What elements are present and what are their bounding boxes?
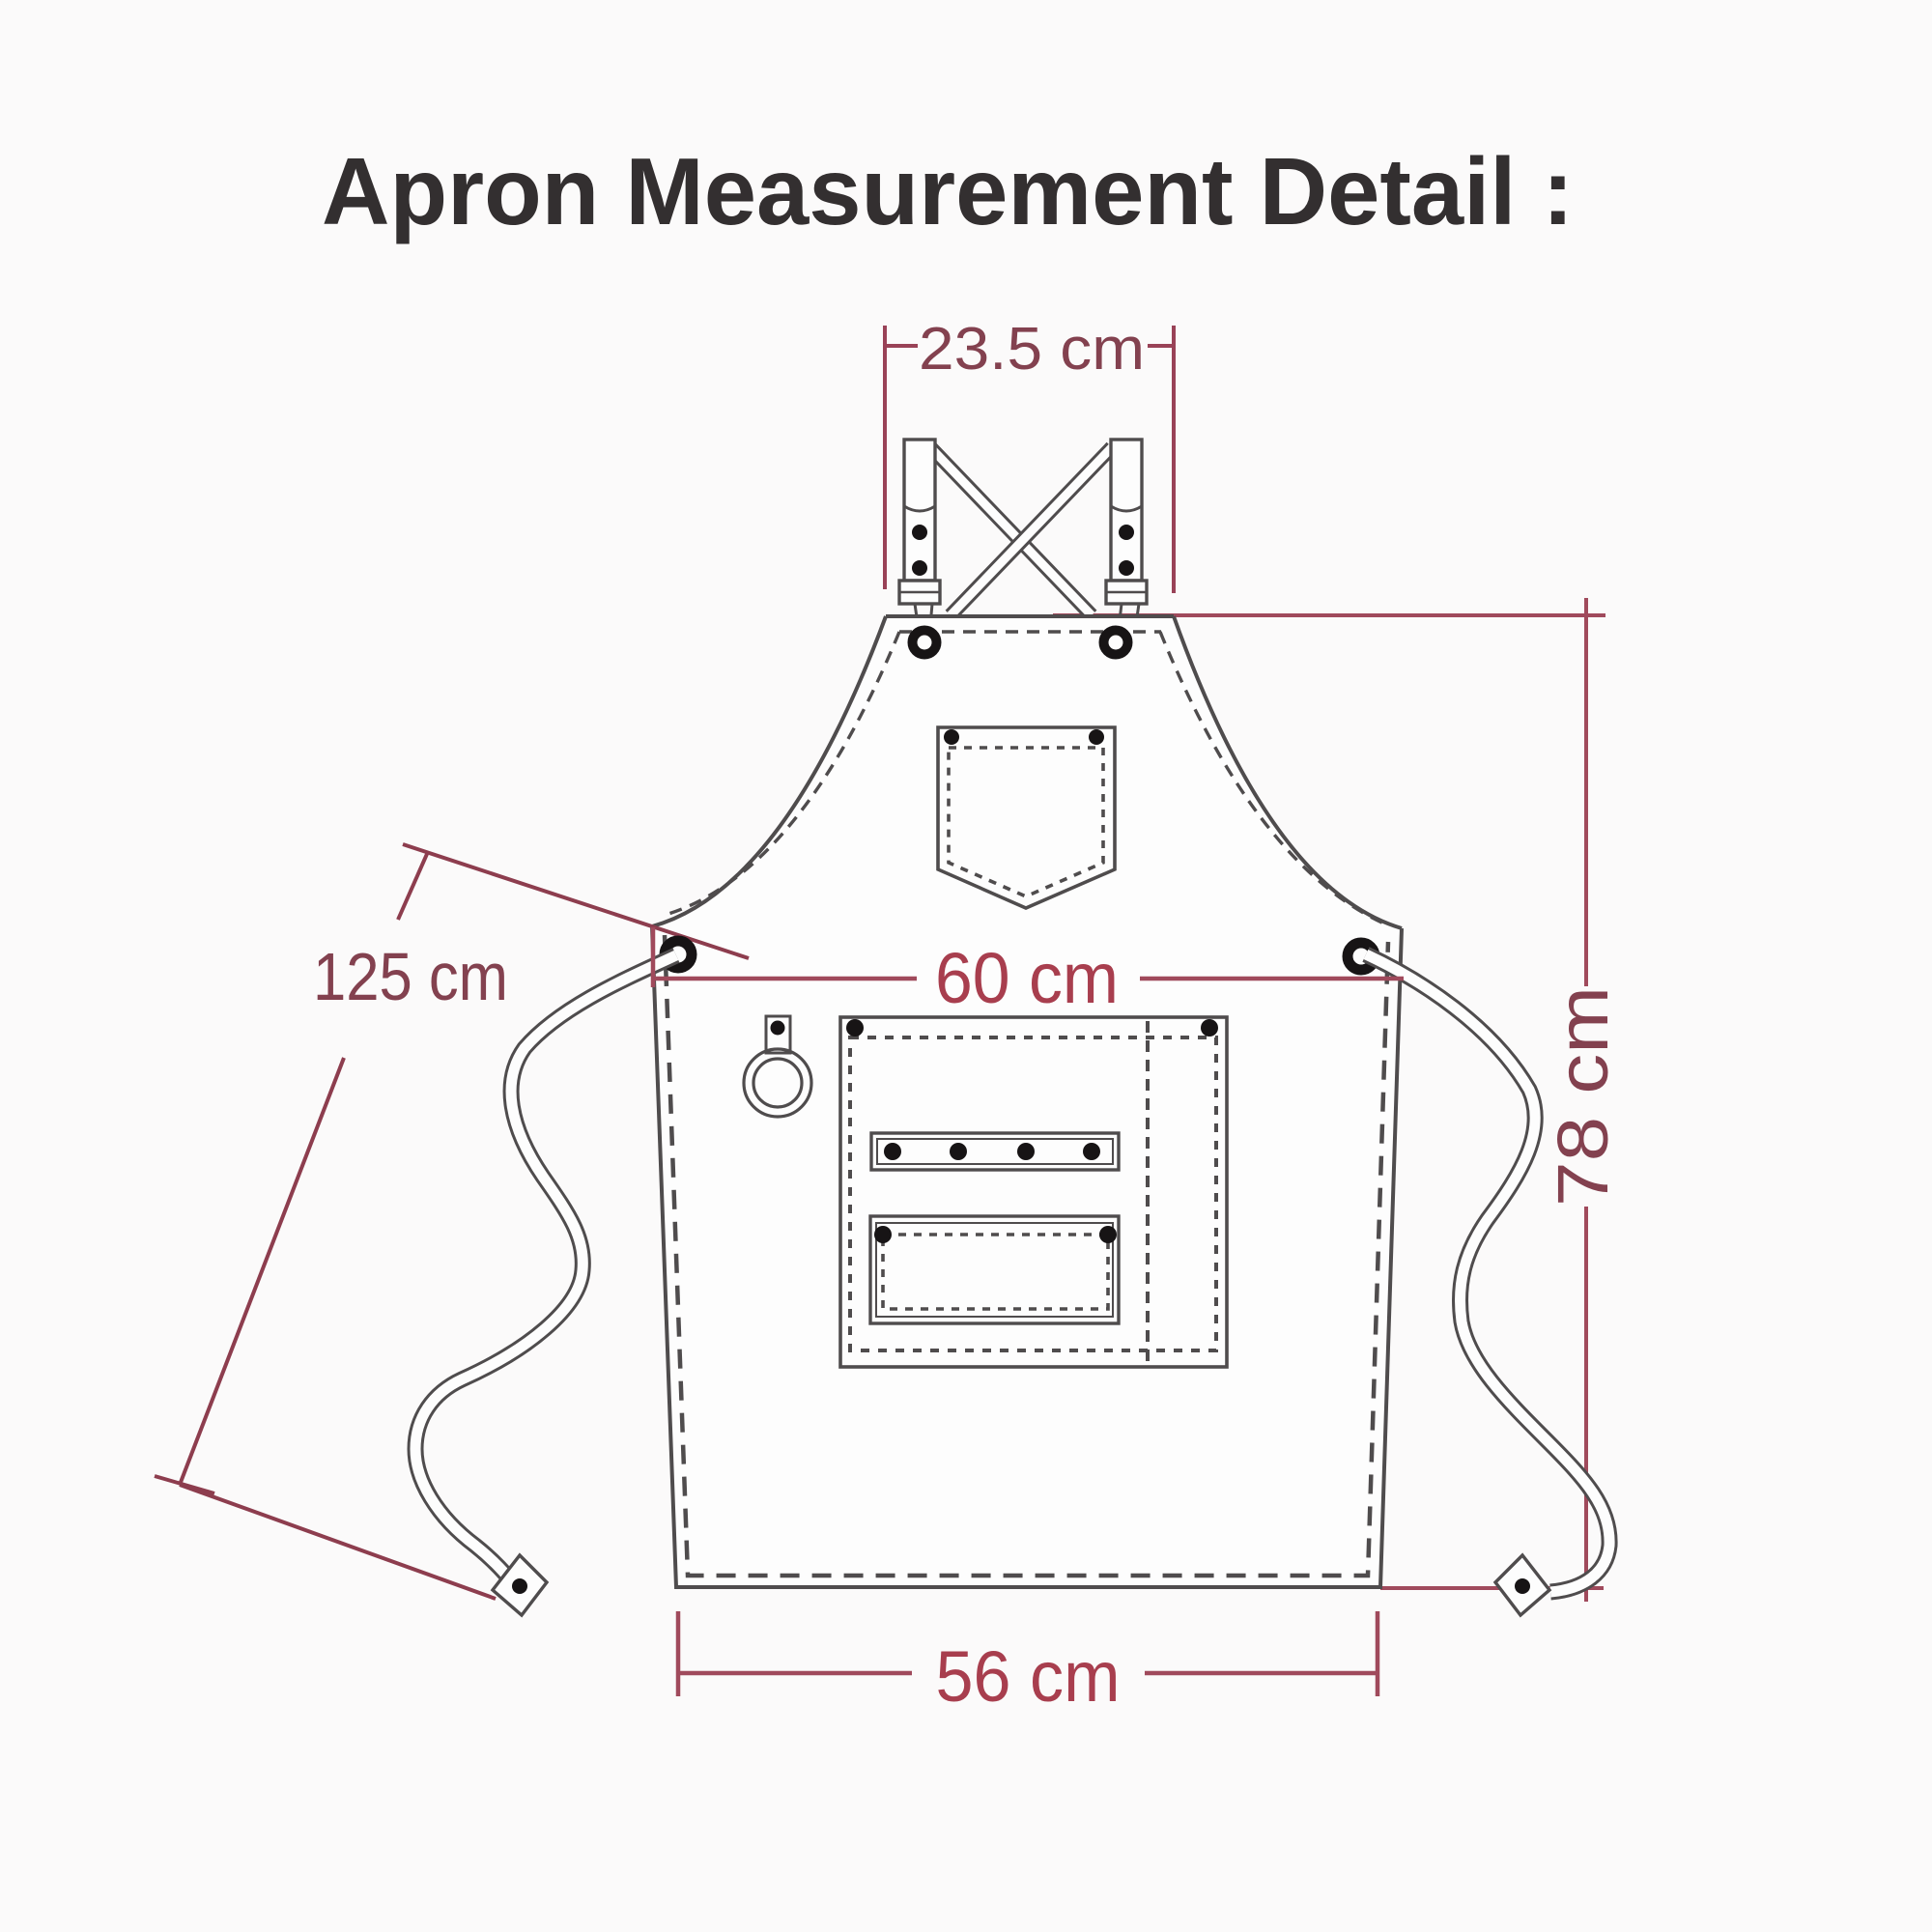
svg-text:23.5 cm: 23.5 cm [919, 316, 1145, 383]
svg-text:60 cm: 60 cm [935, 938, 1119, 1018]
svg-text:Apron Measurement Detail :: Apron Measurement Detail : [322, 138, 1574, 244]
svg-text:56 cm: 56 cm [936, 1636, 1121, 1717]
svg-text:78 cm: 78 cm [1543, 986, 1623, 1207]
svg-text:125 cm: 125 cm [313, 939, 508, 1014]
